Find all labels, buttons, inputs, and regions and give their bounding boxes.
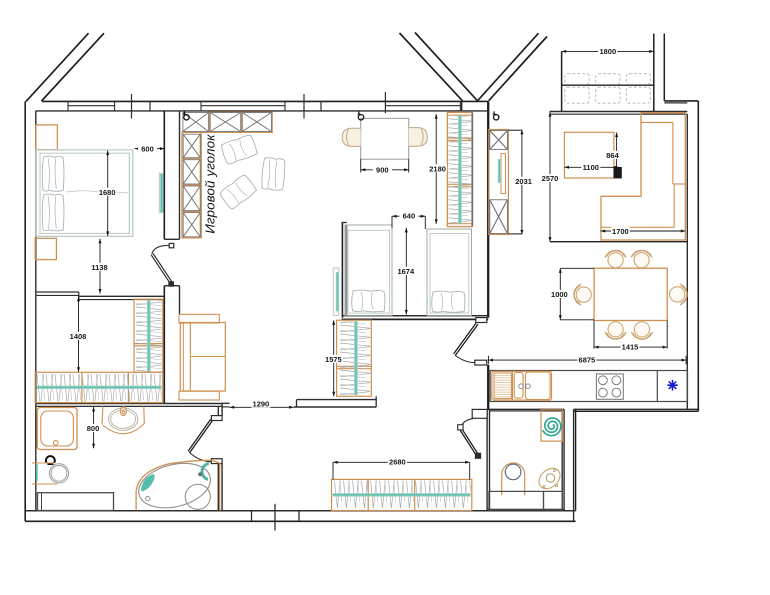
svg-text:1800: 1800 (599, 47, 616, 56)
svg-text:1408: 1408 (70, 332, 87, 341)
svg-text:640: 640 (403, 211, 416, 220)
svg-text:2680: 2680 (389, 458, 406, 467)
svg-text:6875: 6875 (579, 356, 596, 365)
svg-text:1680: 1680 (99, 188, 116, 197)
svg-text:864: 864 (606, 151, 619, 160)
svg-text:2180: 2180 (429, 164, 446, 173)
svg-text:Игровой уголок: Игровой уголок (203, 134, 218, 234)
svg-text:1000: 1000 (551, 290, 568, 299)
svg-text:2031: 2031 (515, 177, 532, 186)
svg-text:1290: 1290 (253, 400, 270, 409)
svg-text:800: 800 (87, 424, 100, 433)
svg-text:900: 900 (376, 166, 389, 175)
svg-text:600: 600 (141, 144, 154, 153)
svg-text:1575: 1575 (325, 355, 342, 364)
svg-text:1700: 1700 (612, 227, 629, 236)
svg-text:2570: 2570 (542, 174, 559, 183)
svg-text:1100: 1100 (583, 163, 599, 172)
svg-text:1138: 1138 (91, 263, 107, 272)
svg-text:1415: 1415 (622, 343, 639, 352)
svg-text:1674: 1674 (397, 267, 415, 276)
